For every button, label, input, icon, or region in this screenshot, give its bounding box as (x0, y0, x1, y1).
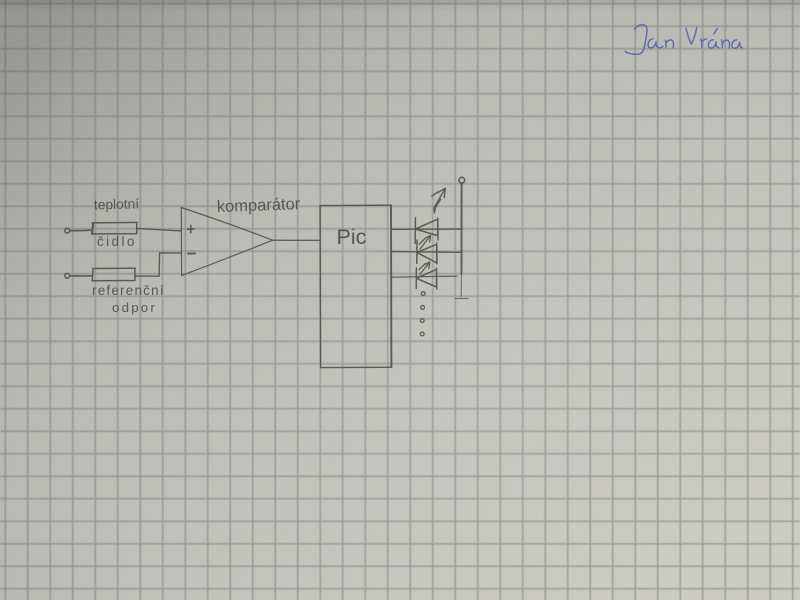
svg-text:odpor: odpor (112, 300, 157, 315)
svg-text:referenční: referenční (92, 283, 165, 298)
svg-text:teplotní: teplotní (94, 196, 140, 212)
svg-text:komparátor: komparátor (217, 195, 302, 216)
svg-text:čidlo: čidlo (97, 234, 137, 249)
svg-text:Pic: Pic (337, 225, 367, 249)
